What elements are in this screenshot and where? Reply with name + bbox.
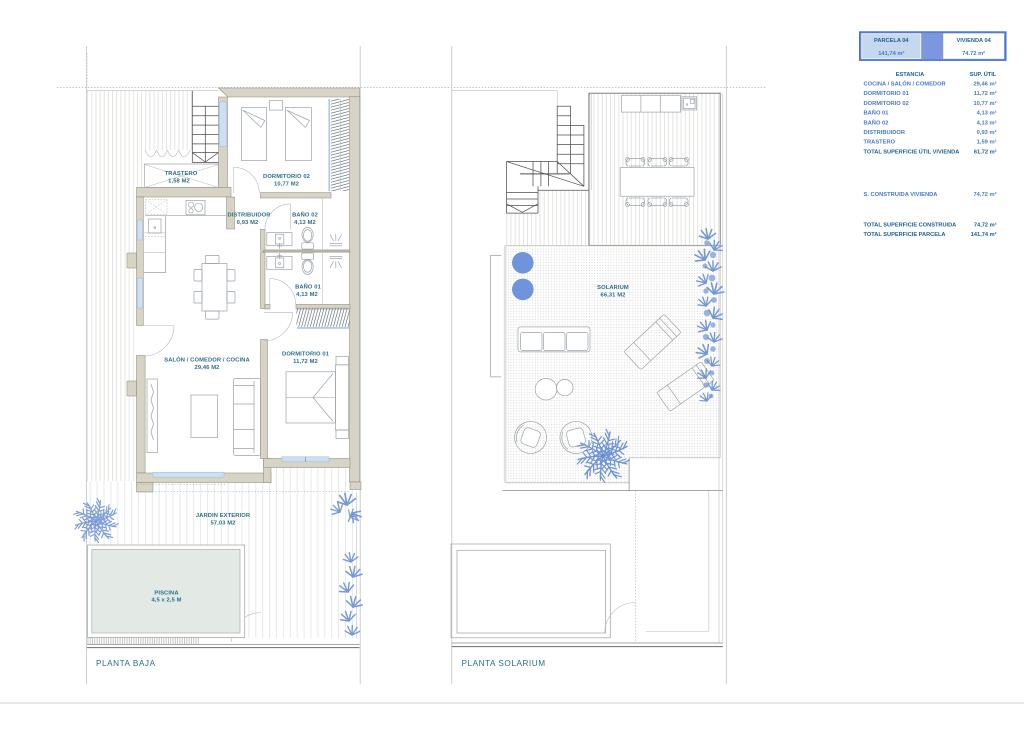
- svg-text:0,93 M2: 0,93 M2: [237, 220, 259, 226]
- svg-text:TRASTERO: TRASTERO: [864, 140, 896, 146]
- svg-text:PARCELA 04: PARCELA 04: [874, 38, 909, 44]
- svg-text:4,13 m²: 4,13 m²: [977, 119, 997, 126]
- svg-text:BAÑO 01: BAÑO 01: [864, 110, 890, 117]
- svg-text:ESTANCIA: ESTANCIA: [896, 72, 924, 78]
- svg-text:TOTAL SUPERFICIE CONSTRUIDA: TOTAL SUPERFICIE CONSTRUIDA: [864, 222, 957, 228]
- svg-text:PISCINA: PISCINA: [154, 591, 179, 597]
- svg-text:S. CONSTRUIDA VIVIENDA: S. CONSTRUIDA VIVIENDA: [864, 192, 938, 198]
- svg-text:BAÑO 02: BAÑO 02: [864, 119, 889, 126]
- svg-text:DISTRIBUIDOR: DISTRIBUIDOR: [227, 213, 271, 219]
- svg-text:11,72 M2: 11,72 M2: [293, 359, 318, 365]
- svg-text:PLANTA SOLARIUM: PLANTA SOLARIUM: [462, 659, 546, 668]
- svg-text:BAÑO 01: BAÑO 01: [295, 284, 322, 291]
- svg-text:BAÑO 02: BAÑO 02: [292, 212, 318, 219]
- svg-text:DORMITORIO 02: DORMITORIO 02: [864, 101, 909, 107]
- svg-text:10,77 m²: 10,77 m²: [973, 100, 996, 107]
- svg-text:66,31 M2: 66,31 M2: [601, 293, 626, 299]
- svg-text:1,59 m²: 1,59 m²: [977, 139, 997, 146]
- svg-text:29,46 M2: 29,46 M2: [195, 365, 220, 371]
- svg-text:COCINA / SALÓN / COMEDOR: COCINA / SALÓN / COMEDOR: [864, 80, 947, 88]
- svg-text:141,74 m²: 141,74 m²: [878, 50, 904, 57]
- svg-text:4,13 m²: 4,13 m²: [977, 110, 997, 117]
- svg-text:1,58 M2: 1,58 M2: [168, 179, 190, 185]
- svg-text:74,72 m²: 74,72 m²: [974, 221, 997, 228]
- svg-text:74.72 m²: 74.72 m²: [962, 50, 985, 57]
- svg-text:0,93 m²: 0,93 m²: [977, 129, 997, 136]
- svg-text:DISTRIBUIDOR: DISTRIBUIDOR: [864, 130, 906, 136]
- svg-text:141,74 m²: 141,74 m²: [971, 231, 997, 238]
- svg-text:TOTAL SUPERFICIE ÚTIL VIVIENDA: TOTAL SUPERFICIE ÚTIL VIVIENDA: [864, 148, 960, 155]
- svg-text:TOTAL SUPERFICIE PARCELA: TOTAL SUPERFICIE PARCELA: [864, 232, 946, 238]
- svg-text:VIVIENDA 04: VIVIENDA 04: [956, 38, 991, 44]
- svg-text:4,13 M2: 4,13 M2: [296, 292, 318, 298]
- svg-text:74,72 m²: 74,72 m²: [973, 191, 996, 198]
- svg-text:PLANTA BAJA: PLANTA BAJA: [96, 659, 156, 668]
- svg-text:DORMITORIO 01: DORMITORIO 01: [282, 352, 330, 358]
- svg-text:TRASTERO: TRASTERO: [165, 171, 198, 177]
- svg-text:11,72 m²: 11,72 m²: [974, 90, 997, 97]
- svg-text:DORMITORIO 01: DORMITORIO 01: [864, 91, 910, 97]
- svg-text:4,13 M2: 4,13 M2: [294, 220, 316, 226]
- svg-text:29,46 m²: 29,46 m²: [973, 81, 996, 88]
- svg-text:DORMITORIO 02: DORMITORIO 02: [263, 174, 310, 180]
- svg-text:JARDIN EXTERIOR: JARDIN EXTERIOR: [196, 513, 251, 519]
- svg-text:57,03 M2: 57,03 M2: [211, 521, 236, 527]
- svg-text:SALÓN / COMEDOR / COCINA: SALÓN / COMEDOR / COCINA: [164, 356, 250, 364]
- svg-text:4,5 x 2,5 M: 4,5 x 2,5 M: [151, 598, 181, 604]
- svg-text:SUP. ÚTIL: SUP. ÚTIL: [970, 71, 997, 78]
- svg-text:61,72 m²: 61,72 m²: [974, 148, 997, 155]
- svg-text:SOLARIUM: SOLARIUM: [597, 285, 629, 291]
- svg-text:10,77 M2: 10,77 M2: [274, 182, 299, 188]
